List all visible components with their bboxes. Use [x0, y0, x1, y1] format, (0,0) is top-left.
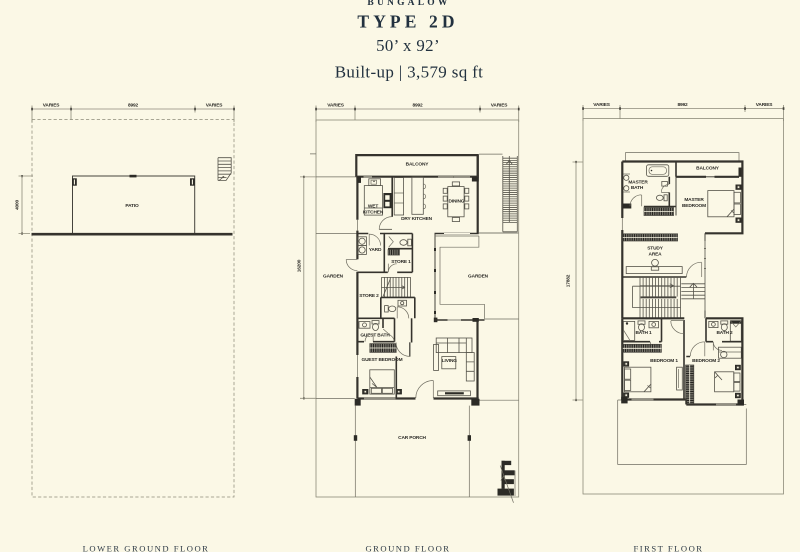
svg-text:DINING: DINING — [448, 199, 464, 205]
svg-text:YARD: YARD — [369, 247, 382, 253]
svg-text:KITCHEN: KITCHEN — [363, 209, 384, 215]
svg-text:GARDEN: GARDEN — [323, 274, 344, 280]
svg-text:8992: 8992 — [412, 103, 423, 109]
svg-text:BATH: BATH — [631, 185, 644, 191]
svg-text:TYPE 2D: TYPE 2D — [357, 12, 458, 32]
svg-text:BEDROOM: BEDROOM — [682, 203, 706, 209]
svg-text:VARIES: VARIES — [593, 102, 611, 108]
svg-text:Built-up | 3,579 sq ft: Built-up | 3,579 sq ft — [335, 63, 484, 82]
svg-text:50’ x 92’: 50’ x 92’ — [376, 36, 440, 55]
svg-text:BATH 1: BATH 1 — [635, 330, 652, 336]
svg-text:VARIES: VARIES — [327, 103, 345, 109]
svg-text:GUEST BATH: GUEST BATH — [360, 332, 390, 338]
svg-text:BEDROOM 1: BEDROOM 1 — [650, 358, 678, 364]
svg-text:VARIES: VARIES — [491, 103, 509, 109]
svg-text:8992: 8992 — [677, 102, 688, 108]
svg-text:8992: 8992 — [128, 103, 139, 109]
svg-text:GROUND FLOOR: GROUND FLOOR — [365, 544, 450, 552]
svg-text:VARIES: VARIES — [756, 102, 774, 108]
svg-text:GARDEN: GARDEN — [468, 274, 489, 280]
svg-text:16200: 16200 — [296, 259, 302, 272]
svg-text:AREA: AREA — [649, 251, 663, 257]
svg-text:STUDY: STUDY — [647, 246, 663, 252]
svg-text:CAR PORCH: CAR PORCH — [398, 435, 426, 441]
svg-text:4000: 4000 — [15, 199, 21, 210]
svg-text:BEDROOM 2: BEDROOM 2 — [692, 358, 720, 364]
svg-text:BATH 2: BATH 2 — [716, 330, 733, 336]
svg-text:BUNGALOW: BUNGALOW — [367, 0, 450, 8]
svg-text:LOWER GROUND FLOOR: LOWER GROUND FLOOR — [83, 544, 210, 552]
svg-text:WET: WET — [368, 204, 378, 210]
svg-text:VARIES: VARIES — [43, 103, 61, 109]
svg-text:BALCONY: BALCONY — [406, 162, 430, 168]
svg-text:MASTER: MASTER — [684, 197, 704, 203]
svg-text:FIRST FLOOR: FIRST FLOOR — [633, 544, 703, 552]
svg-text:17882: 17882 — [566, 274, 572, 287]
svg-text:VARIES: VARIES — [206, 103, 224, 109]
svg-text:PATIO: PATIO — [125, 203, 139, 209]
svg-text:DRY KITCHEN: DRY KITCHEN — [401, 216, 433, 222]
svg-text:STORE 2: STORE 2 — [359, 293, 379, 299]
svg-text:MASTER: MASTER — [628, 180, 648, 186]
svg-text:BALCONY: BALCONY — [696, 166, 720, 172]
svg-text:LIVING: LIVING — [442, 358, 458, 364]
